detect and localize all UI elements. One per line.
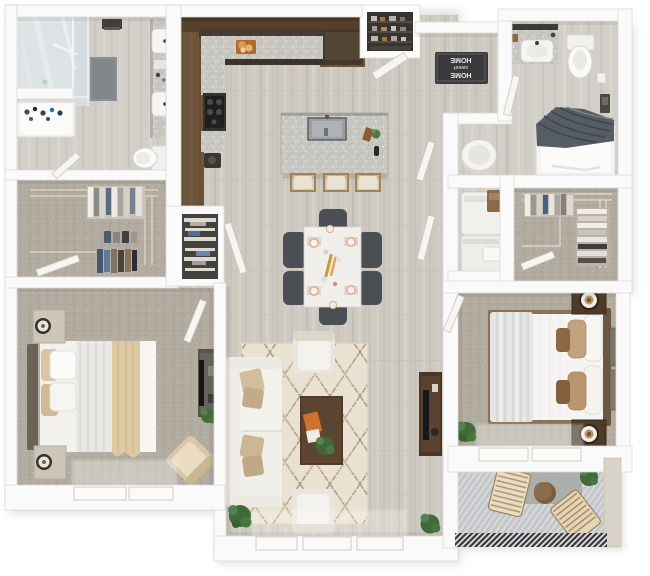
svg-text:HOME: HOME <box>450 56 471 63</box>
svg-text:sweet: sweet <box>453 64 468 70</box>
svg-text:HOME: HOME <box>450 71 471 78</box>
